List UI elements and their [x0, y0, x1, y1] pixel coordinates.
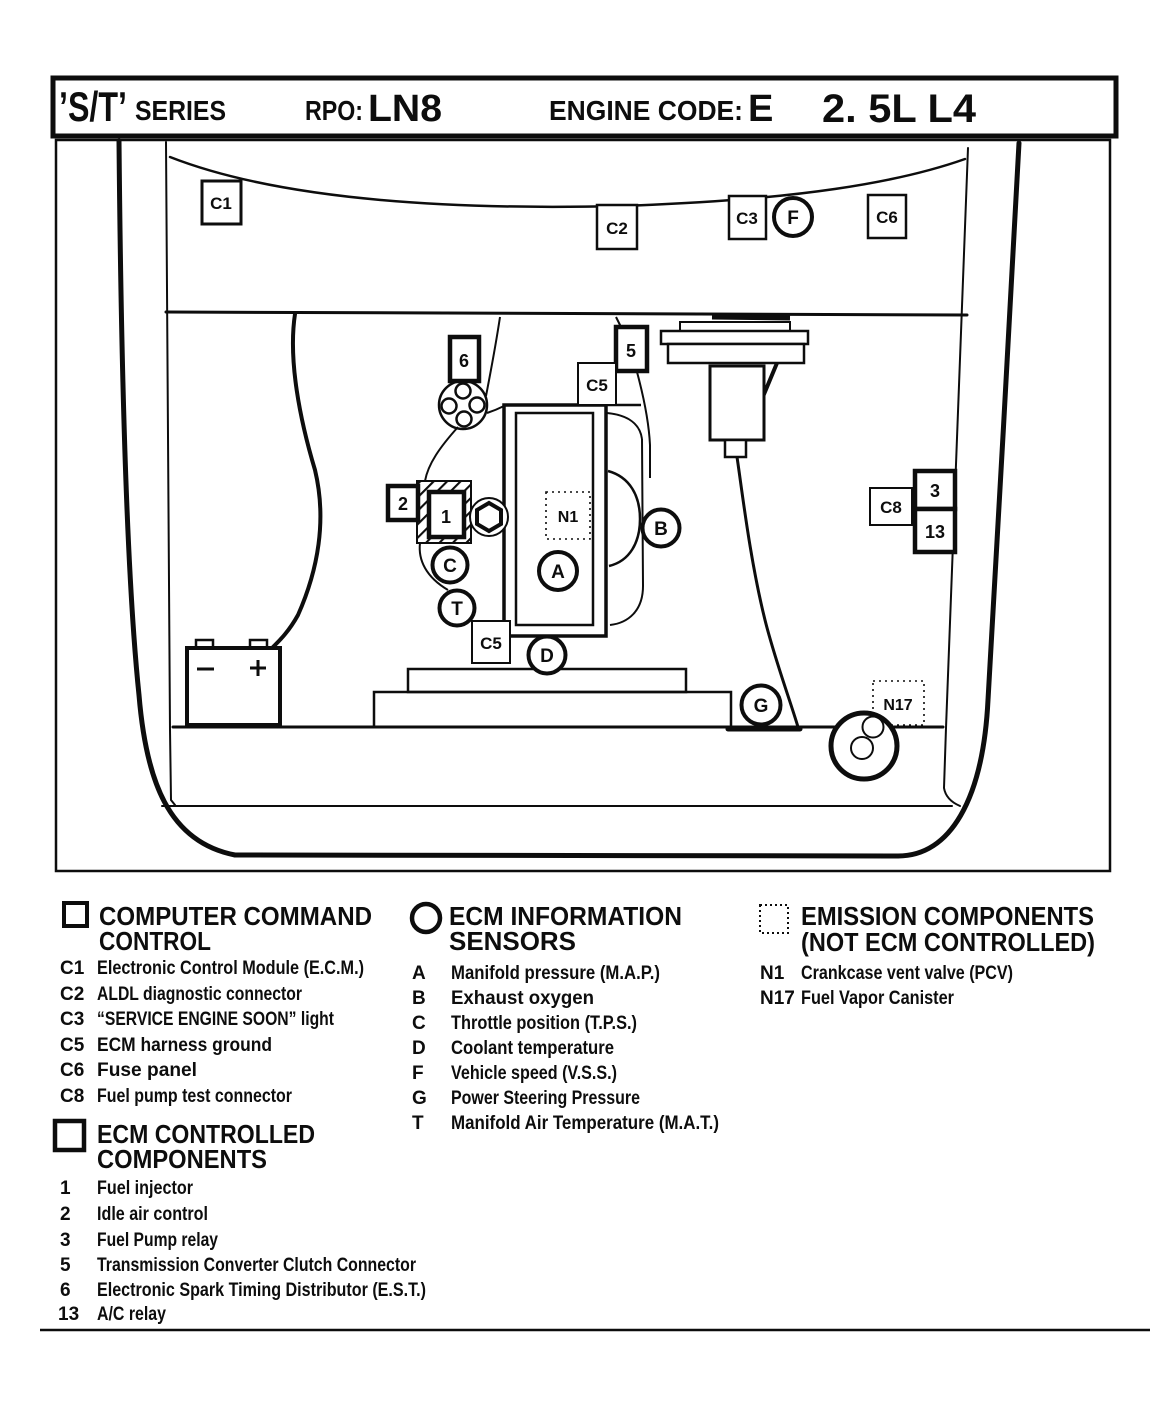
- svg-text:C8: C8: [60, 1086, 84, 1107]
- svg-text:Fuel injector: Fuel injector: [97, 1178, 194, 1199]
- svg-text:E: E: [748, 88, 773, 130]
- svg-text:N17: N17: [760, 988, 795, 1009]
- svg-text:1: 1: [60, 1178, 71, 1199]
- svg-text:Crankcase vent valve (PCV): Crankcase vent valve (PCV): [801, 963, 1013, 984]
- svg-text:C5: C5: [480, 634, 502, 653]
- svg-text:Electronic Spark Timing Distri: Electronic Spark Timing Distributor (E.S…: [97, 1280, 426, 1301]
- svg-text:13: 13: [58, 1304, 79, 1325]
- svg-text:6: 6: [60, 1280, 71, 1301]
- svg-text:Throttle position (T.P.S.): Throttle position (T.P.S.): [451, 1013, 637, 1034]
- svg-text:B: B: [412, 988, 426, 1009]
- svg-text:Electronic Control Module (E.C: Electronic Control Module (E.C.M.): [97, 958, 364, 979]
- svg-text:C5: C5: [60, 1035, 85, 1056]
- svg-text:Vehicle speed (V.S.S.): Vehicle speed (V.S.S.): [451, 1063, 617, 1084]
- svg-text:D: D: [412, 1038, 426, 1059]
- svg-text:LN8: LN8: [368, 88, 442, 130]
- svg-text:Manifold pressure (M.A.P.): Manifold pressure (M.A.P.): [451, 963, 660, 984]
- svg-text:D: D: [540, 646, 554, 667]
- svg-text:Coolant temperature: Coolant temperature: [451, 1038, 614, 1059]
- svg-text:N1: N1: [558, 509, 579, 526]
- svg-text:G: G: [412, 1088, 427, 1109]
- svg-text:CONTROL: CONTROL: [99, 926, 211, 956]
- svg-text:’S/T’: ’S/T’: [59, 83, 127, 130]
- svg-text:Fuse panel: Fuse panel: [97, 1060, 197, 1081]
- svg-text:C2: C2: [606, 219, 628, 238]
- svg-text:ALDL diagnostic connector: ALDL diagnostic connector: [97, 984, 302, 1005]
- svg-text:F: F: [412, 1063, 424, 1084]
- svg-text:C6: C6: [60, 1060, 84, 1081]
- svg-text:Exhaust oxygen: Exhaust oxygen: [451, 988, 594, 1009]
- svg-text:(NOT ECM CONTROLLED): (NOT ECM CONTROLLED): [801, 927, 1095, 957]
- svg-text:3: 3: [60, 1230, 71, 1251]
- svg-text:2: 2: [60, 1204, 71, 1225]
- svg-text:C5: C5: [586, 376, 608, 395]
- svg-text:C3: C3: [60, 1009, 84, 1030]
- svg-text:2. 5L L4: 2. 5L L4: [822, 87, 977, 131]
- svg-text:T: T: [451, 599, 463, 620]
- svg-text:B: B: [654, 519, 668, 540]
- svg-text:1: 1: [441, 507, 451, 527]
- svg-text:13: 13: [925, 522, 945, 542]
- svg-text:C2: C2: [60, 984, 84, 1005]
- svg-text:2: 2: [398, 494, 408, 514]
- svg-text:A: A: [412, 963, 426, 984]
- svg-text:SENSORS: SENSORS: [449, 926, 576, 956]
- svg-text:C1: C1: [210, 194, 232, 213]
- svg-text:Idle air control: Idle air control: [97, 1204, 208, 1225]
- svg-text:Fuel Vapor Canister: Fuel Vapor Canister: [801, 988, 955, 1009]
- svg-text:SERIES: SERIES: [135, 95, 226, 126]
- svg-text:T: T: [412, 1113, 424, 1134]
- svg-text:5: 5: [60, 1255, 71, 1276]
- svg-text:5: 5: [626, 341, 636, 361]
- svg-text:F: F: [787, 208, 799, 229]
- svg-text:C: C: [443, 556, 457, 577]
- svg-text:COMPONENTS: COMPONENTS: [97, 1144, 267, 1174]
- svg-text:C: C: [412, 1013, 426, 1034]
- svg-text:A: A: [551, 562, 565, 583]
- svg-text:Power Steering Pressure: Power Steering Pressure: [451, 1088, 640, 1109]
- svg-text:3: 3: [930, 481, 940, 501]
- svg-text:C3: C3: [736, 209, 758, 228]
- svg-text:C8: C8: [880, 498, 902, 517]
- svg-text:C1: C1: [60, 958, 85, 979]
- svg-text:“SERVICE ENGINE SOON” light: “SERVICE ENGINE SOON” light: [97, 1009, 335, 1030]
- svg-text:A/C relay: A/C relay: [97, 1304, 166, 1325]
- svg-text:G: G: [754, 696, 769, 717]
- svg-text:ECM harness ground: ECM harness ground: [97, 1035, 272, 1056]
- svg-text:RPO:: RPO:: [305, 95, 363, 126]
- svg-text:N1: N1: [760, 963, 785, 984]
- svg-text:N17: N17: [883, 697, 912, 714]
- svg-text:6: 6: [459, 351, 469, 371]
- svg-text:C6: C6: [876, 208, 898, 227]
- svg-text:Transmission Converter Clutch: Transmission Converter Clutch Connector: [97, 1255, 416, 1276]
- svg-text:Fuel pump test connector: Fuel pump test connector: [97, 1086, 293, 1107]
- svg-text:ENGINE CODE:: ENGINE CODE:: [549, 95, 743, 126]
- svg-text:Fuel Pump relay: Fuel Pump relay: [97, 1230, 218, 1251]
- svg-text:Manifold Air Temperature (M.A.: Manifold Air Temperature (M.A.T.): [451, 1113, 719, 1134]
